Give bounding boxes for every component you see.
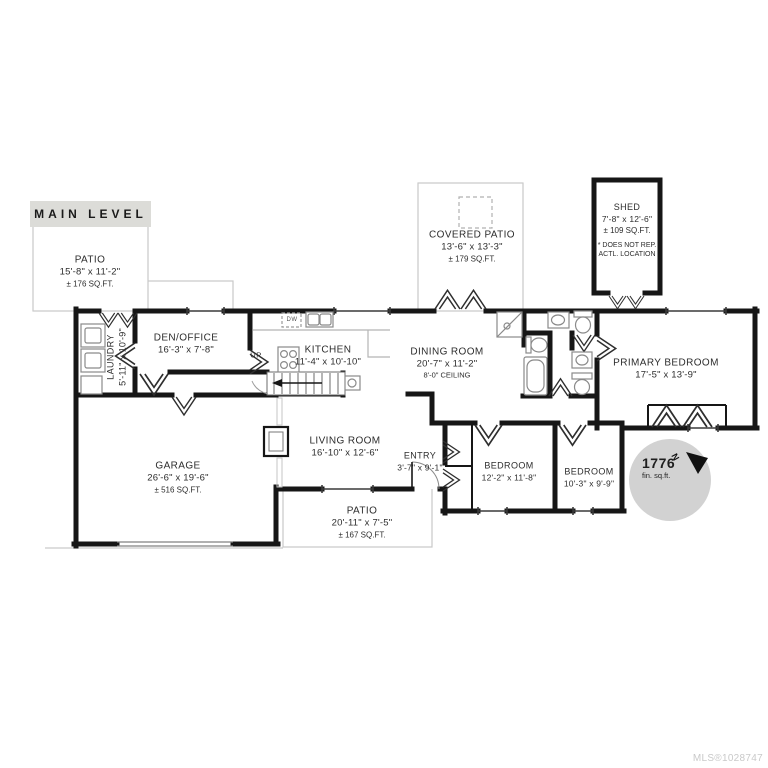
room-label-patio-upper: PATIO 15'-8" x 11'-2" ± 176 SQ.FT. <box>60 254 121 291</box>
room-label-den-office: DEN/OFFICE 16'-3" x 7'-8" <box>154 331 219 356</box>
dishwasher-label: DW <box>287 317 298 323</box>
room-label-dining: DINING ROOM 20'-7" x 11'-2" 8'-0" CEILIN… <box>410 345 483 380</box>
room-label-kitchen: KITCHEN 11'-4" x 10'-10" <box>295 343 361 368</box>
room-label-bedroom-2: BEDROOM 10'-3" x 9'-9" <box>564 467 614 490</box>
room-label-garage: GARAGE 26'-6" x 19'-6" ± 516 SQ.FT. <box>147 460 208 497</box>
room-label-shed: SHED 7'-8" x 12'-6" ± 109 SQ.FT. * DOES … <box>598 202 656 260</box>
room-label-bedroom-1: BEDROOM 12'-2" x 11'-8" <box>482 461 537 484</box>
bath-fixtures <box>497 311 592 395</box>
stairs-up-label: UP <box>250 351 261 360</box>
room-label-entry: ENTRY 3'-7" x 9'-1" <box>397 451 442 474</box>
room-label-covered-patio: COVERED PATIO 13'-6" x 13'-3" ± 179 SQ.F… <box>429 229 515 266</box>
garage-door <box>117 542 233 546</box>
laundry-fixtures <box>81 324 105 394</box>
room-label-patio-lower: PATIO 20'-11" x 7'-5" ± 167 SQ.FT. <box>332 505 393 542</box>
stairs-icon <box>252 372 345 395</box>
room-label-living-room: LIVING ROOM 16'-10" x 12'-6" <box>309 434 380 459</box>
page-title: MAIN LEVEL <box>30 201 151 227</box>
skylight-outline <box>459 197 492 228</box>
floor-plan-canvas: MAIN LEVEL PATIO 15'-8" x 11'-2" ± 176 S… <box>0 0 768 768</box>
room-label-laundry: LAUNDRY 5'-11" x 10'-9" <box>105 328 128 386</box>
area-badge-circle <box>629 439 711 521</box>
mls-watermark: MLS®1028747 <box>693 753 763 764</box>
fireplace-icon <box>264 398 288 487</box>
room-label-primary-bedroom: PRIMARY BEDROOM 17'-5" x 13'-9" <box>613 356 719 381</box>
